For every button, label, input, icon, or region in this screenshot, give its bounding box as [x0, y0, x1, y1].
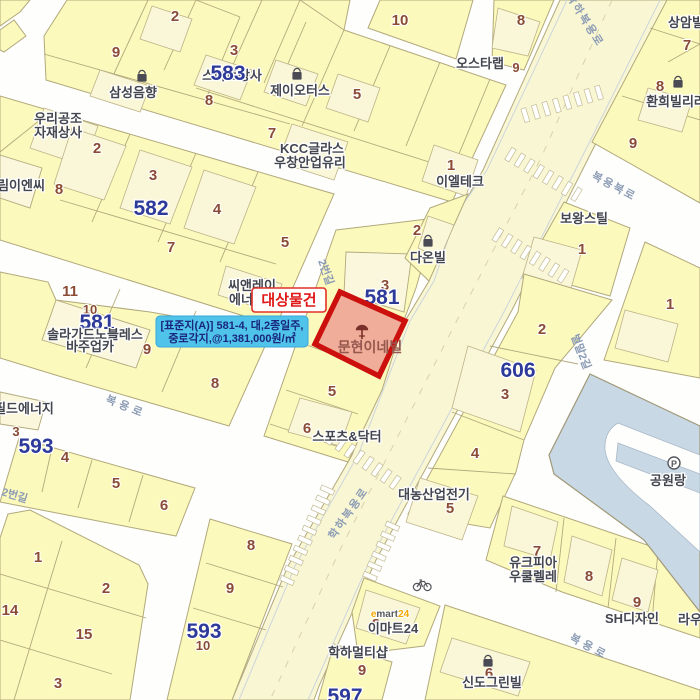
- svg-text:바주업카: 바주업카: [66, 339, 114, 354]
- svg-text:582: 582: [133, 197, 168, 220]
- svg-text:1: 1: [578, 241, 586, 258]
- svg-text:환희빌리라: 환희빌리라: [646, 94, 700, 109]
- svg-text:9: 9: [226, 580, 234, 597]
- svg-text:[표준지(A)] 581-4, 대,2종일주,: [표준지(A)] 581-4, 대,2종일주,: [161, 318, 304, 332]
- svg-text:1: 1: [666, 296, 674, 313]
- svg-text:신도그린빌: 신도그린빌: [462, 675, 522, 690]
- svg-text:3: 3: [149, 167, 157, 184]
- svg-text:8: 8: [205, 92, 213, 109]
- svg-text:학하멀티샵: 학하멀티샵: [328, 645, 388, 660]
- svg-text:다온빌: 다온빌: [410, 250, 446, 265]
- svg-text:606: 606: [500, 359, 535, 382]
- svg-text:5: 5: [353, 86, 361, 103]
- svg-text:9: 9: [512, 60, 519, 75]
- svg-text:2: 2: [413, 222, 421, 239]
- svg-text:6: 6: [303, 420, 311, 437]
- svg-text:라우: 라우: [678, 612, 700, 627]
- svg-text:상암빌: 상암빌: [668, 15, 700, 30]
- svg-text:삼성음향: 삼성음향: [109, 85, 157, 100]
- svg-text:583: 583: [210, 62, 245, 85]
- svg-text:1: 1: [447, 157, 455, 174]
- svg-text:5: 5: [328, 383, 336, 400]
- svg-text:림이엔씨: 림이엔씨: [0, 178, 45, 193]
- svg-text:문현이네빌: 문현이네빌: [338, 339, 402, 355]
- svg-text:597: 597: [327, 685, 362, 700]
- svg-text:SH디자인: SH디자인: [605, 611, 659, 626]
- svg-text:7: 7: [268, 125, 276, 142]
- svg-text:5: 5: [112, 475, 120, 492]
- svg-text:10: 10: [392, 12, 409, 29]
- svg-text:11: 11: [62, 283, 78, 300]
- svg-text:4: 4: [61, 449, 70, 466]
- svg-text:15: 15: [76, 626, 93, 643]
- svg-text:8: 8: [517, 12, 525, 29]
- svg-text:우창안업유리: 우창안업유리: [274, 155, 346, 170]
- svg-text:제이오터스: 제이오터스: [270, 83, 330, 98]
- svg-text:9: 9: [112, 44, 120, 61]
- svg-text:5: 5: [446, 500, 454, 517]
- svg-text:2: 2: [538, 321, 546, 338]
- svg-text:9: 9: [629, 135, 637, 152]
- svg-text:KCC글라스: KCC글라스: [280, 141, 344, 156]
- svg-text:7: 7: [683, 37, 691, 54]
- svg-text:필드에너지: 필드에너지: [0, 401, 54, 416]
- svg-text:2: 2: [93, 140, 101, 157]
- svg-text:2: 2: [171, 8, 179, 25]
- svg-text:593: 593: [18, 435, 53, 458]
- svg-text:P: P: [671, 459, 677, 469]
- svg-text:중로각지,@1,381,000원/㎡: 중로각지,@1,381,000원/㎡: [168, 331, 295, 345]
- svg-text:우리공조: 우리공조: [34, 111, 82, 126]
- svg-text:공원랑: 공원랑: [650, 473, 686, 488]
- svg-text:5: 5: [281, 234, 289, 251]
- svg-text:3: 3: [54, 675, 62, 692]
- svg-text:8: 8: [585, 568, 593, 585]
- svg-text:유크피아: 유크피아: [509, 555, 557, 570]
- svg-text:오스타랩: 오스타랩: [456, 56, 504, 71]
- svg-text:우쿨렐레: 우쿨렐레: [509, 569, 557, 584]
- svg-text:1: 1: [34, 549, 42, 566]
- svg-text:9: 9: [358, 662, 366, 679]
- svg-text:4: 4: [471, 445, 480, 462]
- svg-text:8: 8: [656, 78, 664, 95]
- svg-text:6: 6: [160, 497, 168, 514]
- svg-text:14: 14: [2, 602, 19, 619]
- svg-text:4: 4: [213, 201, 222, 218]
- svg-text:이엘테크: 이엘테크: [436, 174, 484, 189]
- svg-text:8: 8: [55, 181, 63, 198]
- svg-text:이마트24: 이마트24: [368, 621, 419, 636]
- svg-text:대상물건: 대상물건: [261, 292, 316, 309]
- svg-text:9: 9: [633, 594, 641, 611]
- svg-text:10: 10: [196, 638, 210, 653]
- svg-text:2: 2: [102, 580, 110, 597]
- svg-text:스포츠&닥터: 스포츠&닥터: [312, 429, 381, 444]
- svg-text:8: 8: [247, 537, 255, 554]
- svg-text:9: 9: [143, 341, 151, 358]
- svg-text:3: 3: [501, 386, 509, 403]
- svg-text:8: 8: [211, 375, 219, 392]
- svg-text:대농산업전기: 대농산업전기: [398, 487, 470, 502]
- svg-text:자재상사: 자재상사: [34, 125, 82, 140]
- svg-text:3: 3: [230, 42, 238, 59]
- svg-text:보왕스틸: 보왕스틸: [560, 211, 608, 226]
- svg-text:7: 7: [167, 239, 175, 256]
